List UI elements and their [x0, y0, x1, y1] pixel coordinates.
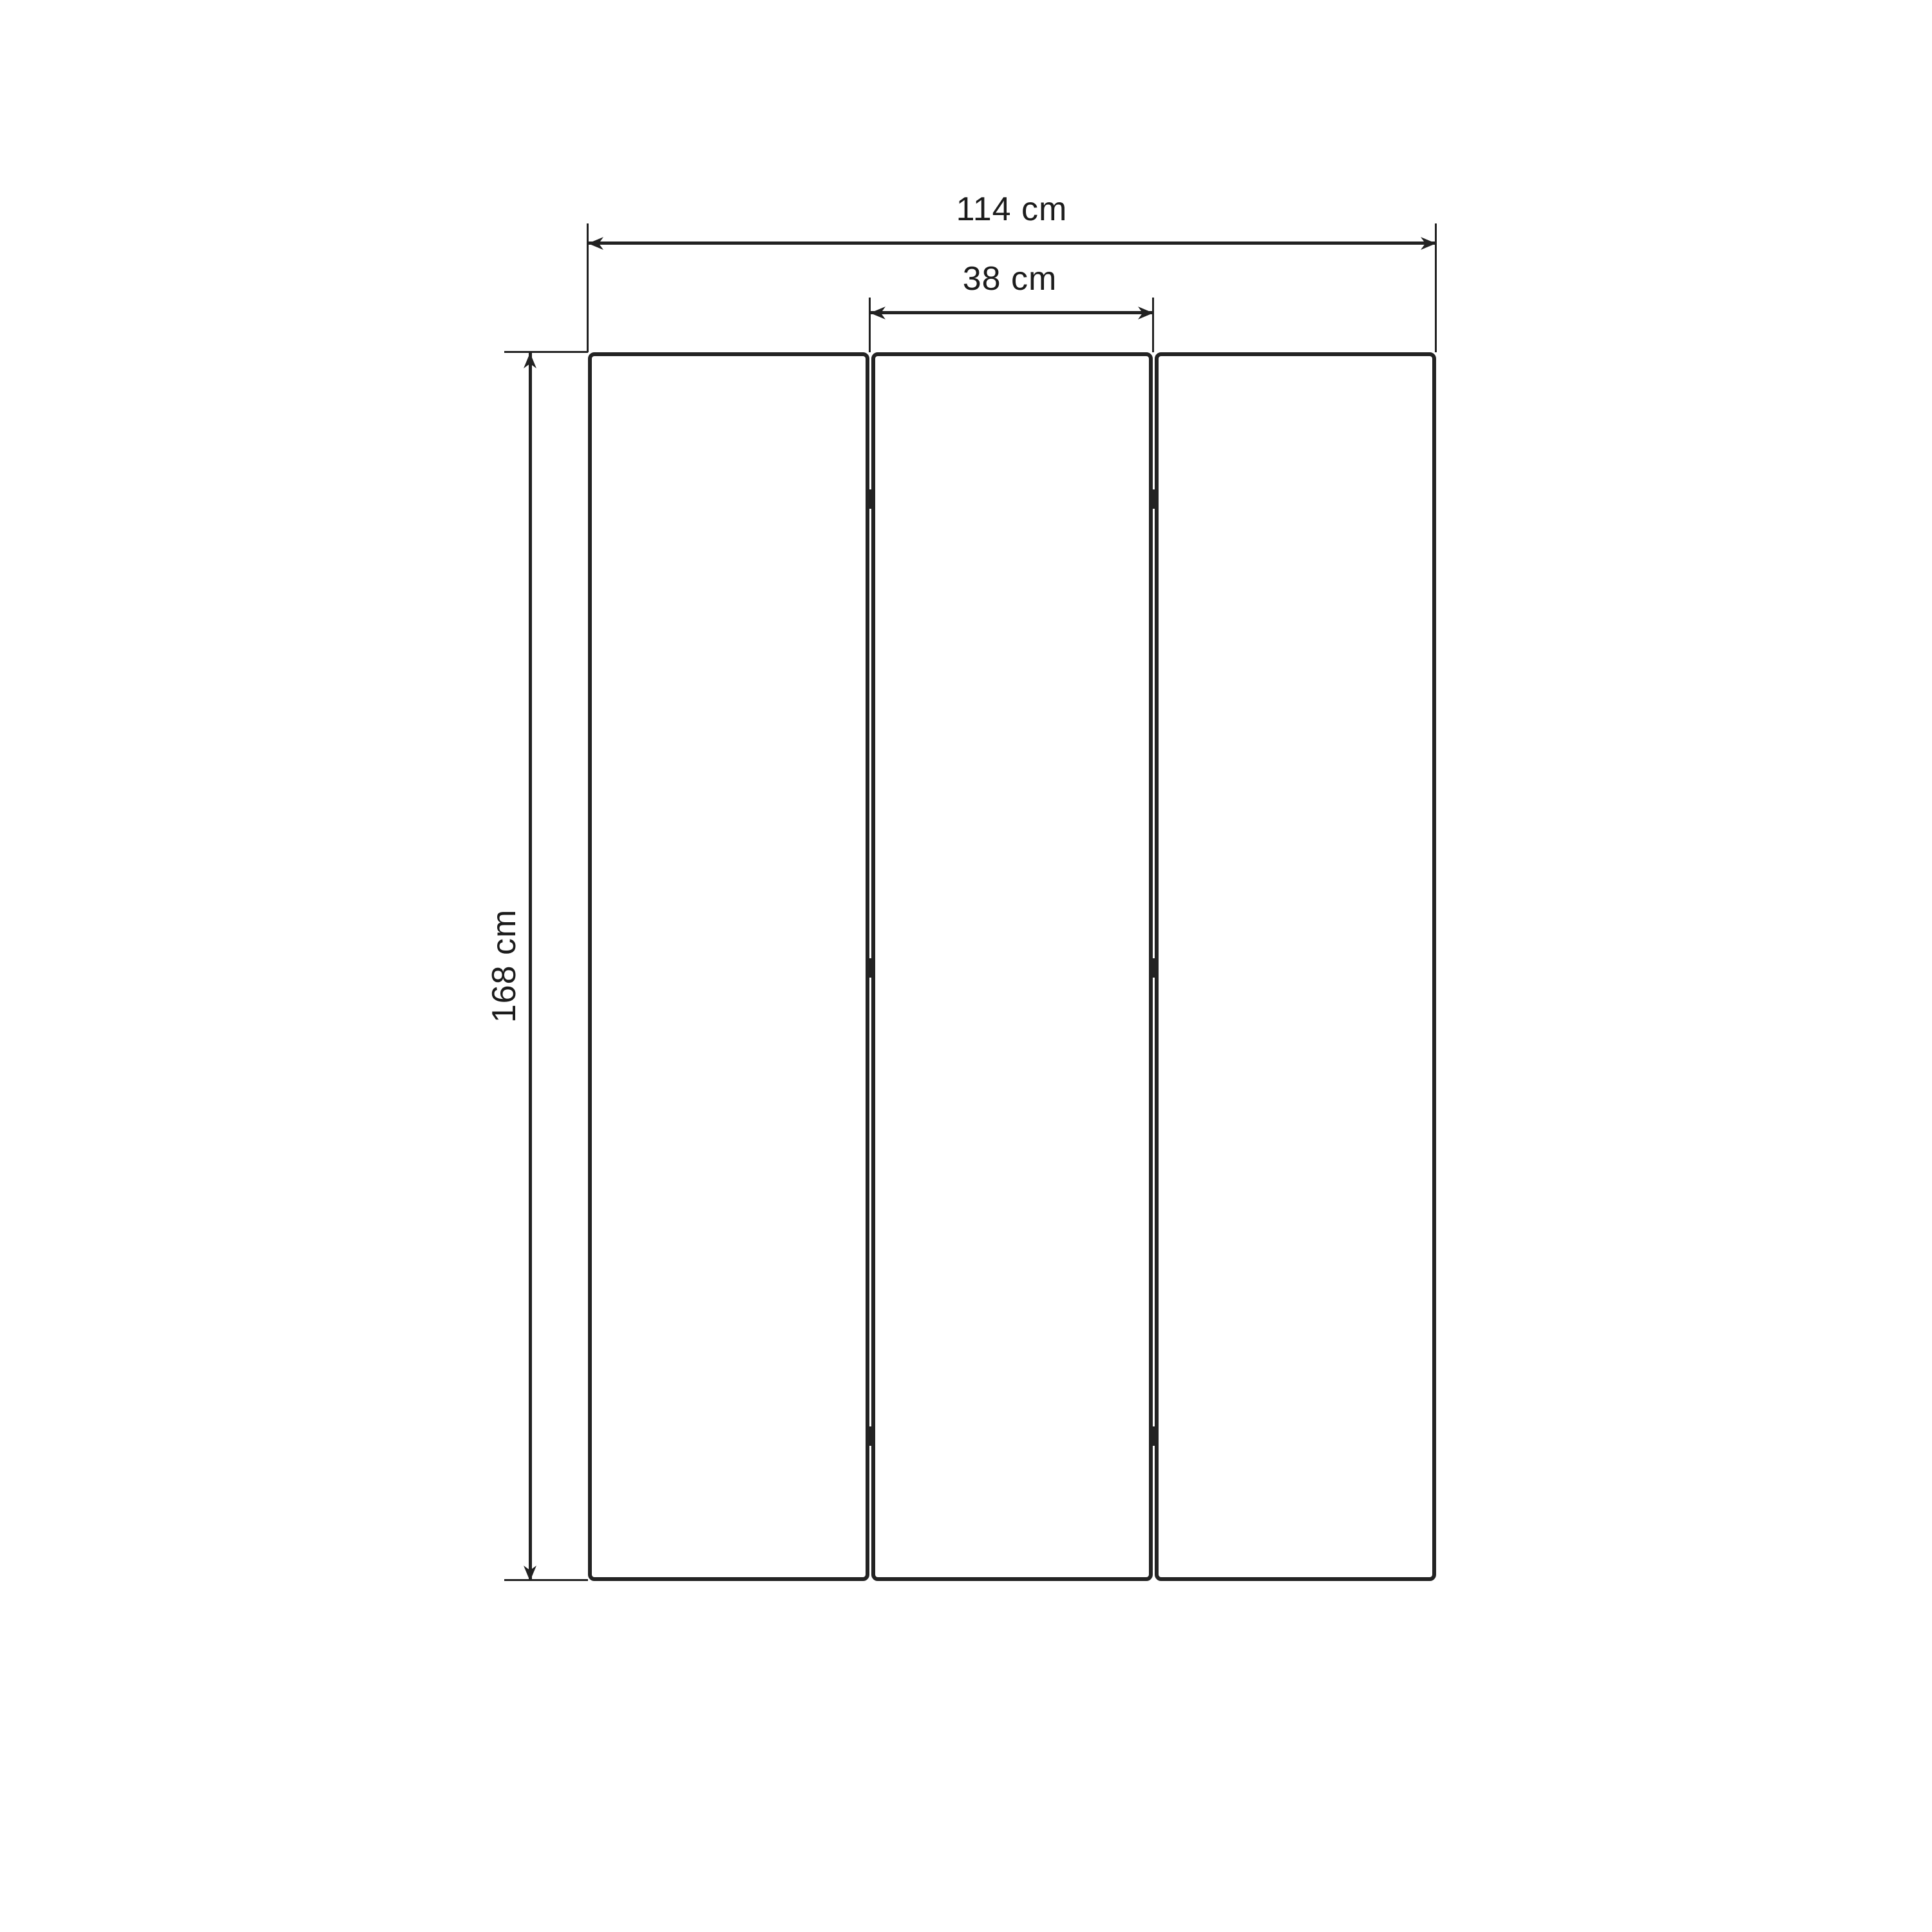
dimension-drawing-canvas: 114 cm 38 cm 168 cm	[0, 0, 1932, 1932]
panel-left	[588, 352, 869, 1581]
hinge-marker	[1149, 958, 1158, 978]
panel-middle	[871, 352, 1153, 1581]
hinge-marker	[866, 489, 875, 509]
height-label: 168 cm	[486, 837, 522, 1095]
panel-width-label: 38 cm	[752, 261, 1267, 297]
hinge-marker	[1149, 489, 1158, 509]
height-extension-line-top	[504, 351, 588, 353]
panel-width-dimension-line	[870, 311, 1153, 314]
panel-width-extension-line-left	[869, 298, 871, 352]
height-dimension-line	[529, 353, 532, 1581]
hinge-marker	[1149, 1426, 1158, 1446]
panel-right	[1155, 352, 1436, 1581]
total-width-dimension-line	[588, 241, 1436, 245]
total-width-label: 114 cm	[754, 191, 1269, 227]
height-extension-line-bottom	[504, 1579, 588, 1581]
hinge-marker	[866, 1426, 875, 1446]
hinge-marker	[866, 958, 875, 978]
panel-width-extension-line-right	[1152, 298, 1154, 352]
